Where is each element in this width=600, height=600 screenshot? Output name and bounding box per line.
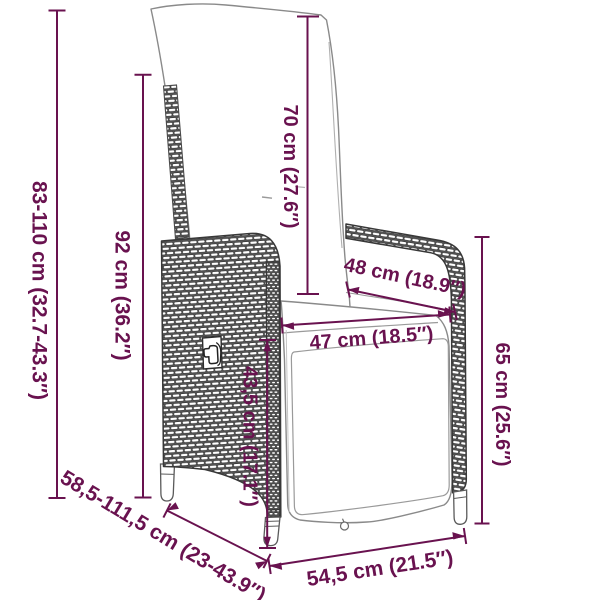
svg-text:43,5 cm (17.1″): 43,5 cm (17.1″): [239, 366, 261, 507]
svg-text:92 cm (36.2″): 92 cm (36.2″): [111, 230, 134, 360]
svg-text:70 cm (27.6″): 70 cm (27.6″): [279, 104, 301, 228]
svg-text:65 cm (25.6″): 65 cm (25.6″): [491, 342, 513, 466]
svg-text:83-110 cm (32.7-43.3″): 83-110 cm (32.7-43.3″): [28, 181, 51, 400]
